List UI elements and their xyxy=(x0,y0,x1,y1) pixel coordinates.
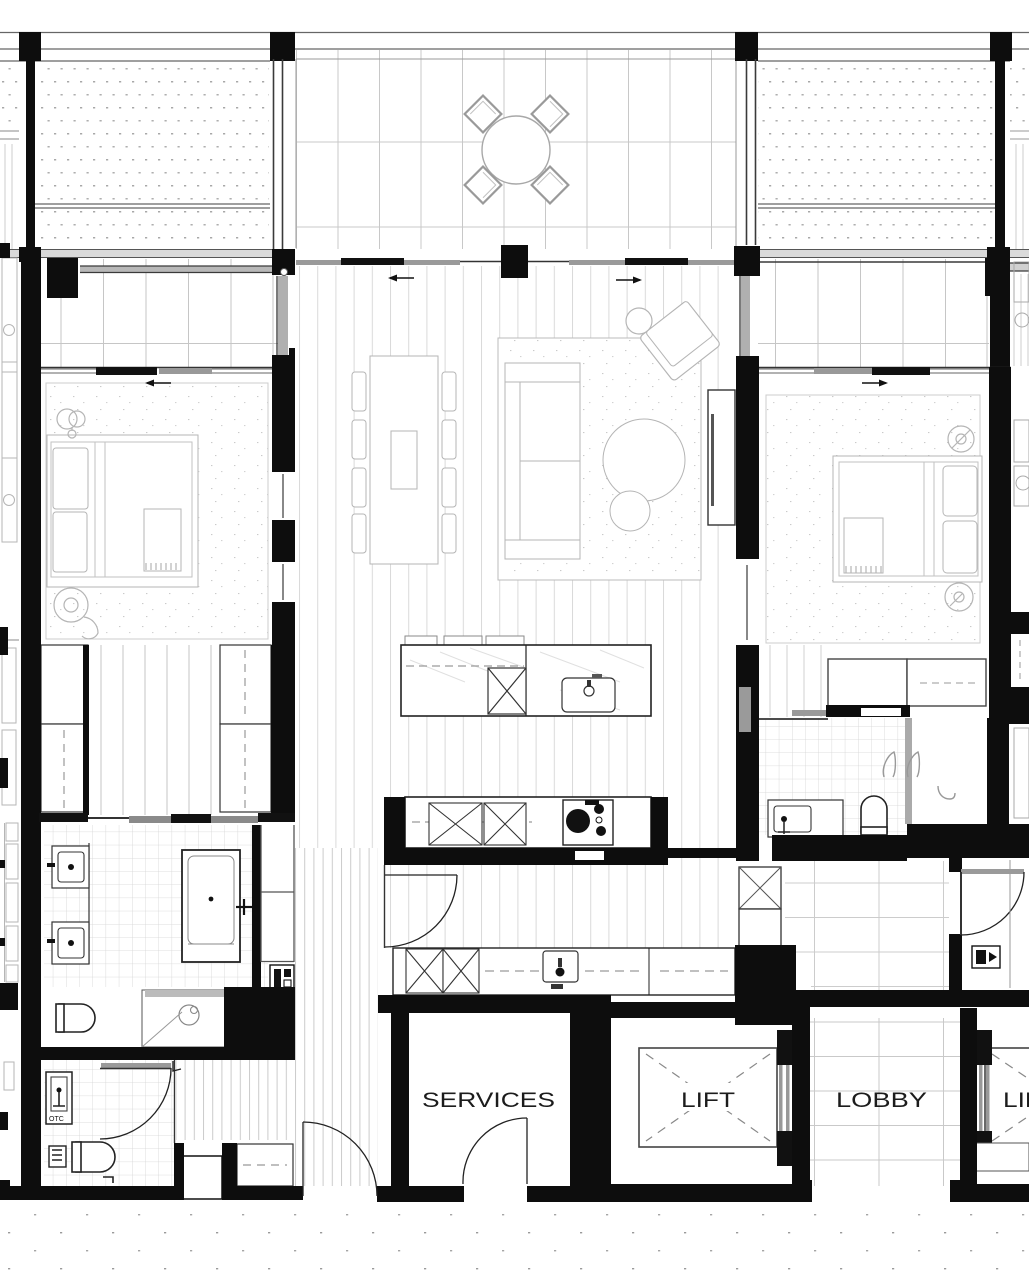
svg-text:SERVICES: SERVICES xyxy=(422,1088,555,1112)
svg-text:LIFT: LIFT xyxy=(681,1088,735,1112)
svg-text:LOBBY: LOBBY xyxy=(836,1088,927,1112)
svg-text:OTC: OTC xyxy=(49,1116,64,1123)
svg-text:LIFT: LIFT xyxy=(1003,1088,1029,1112)
